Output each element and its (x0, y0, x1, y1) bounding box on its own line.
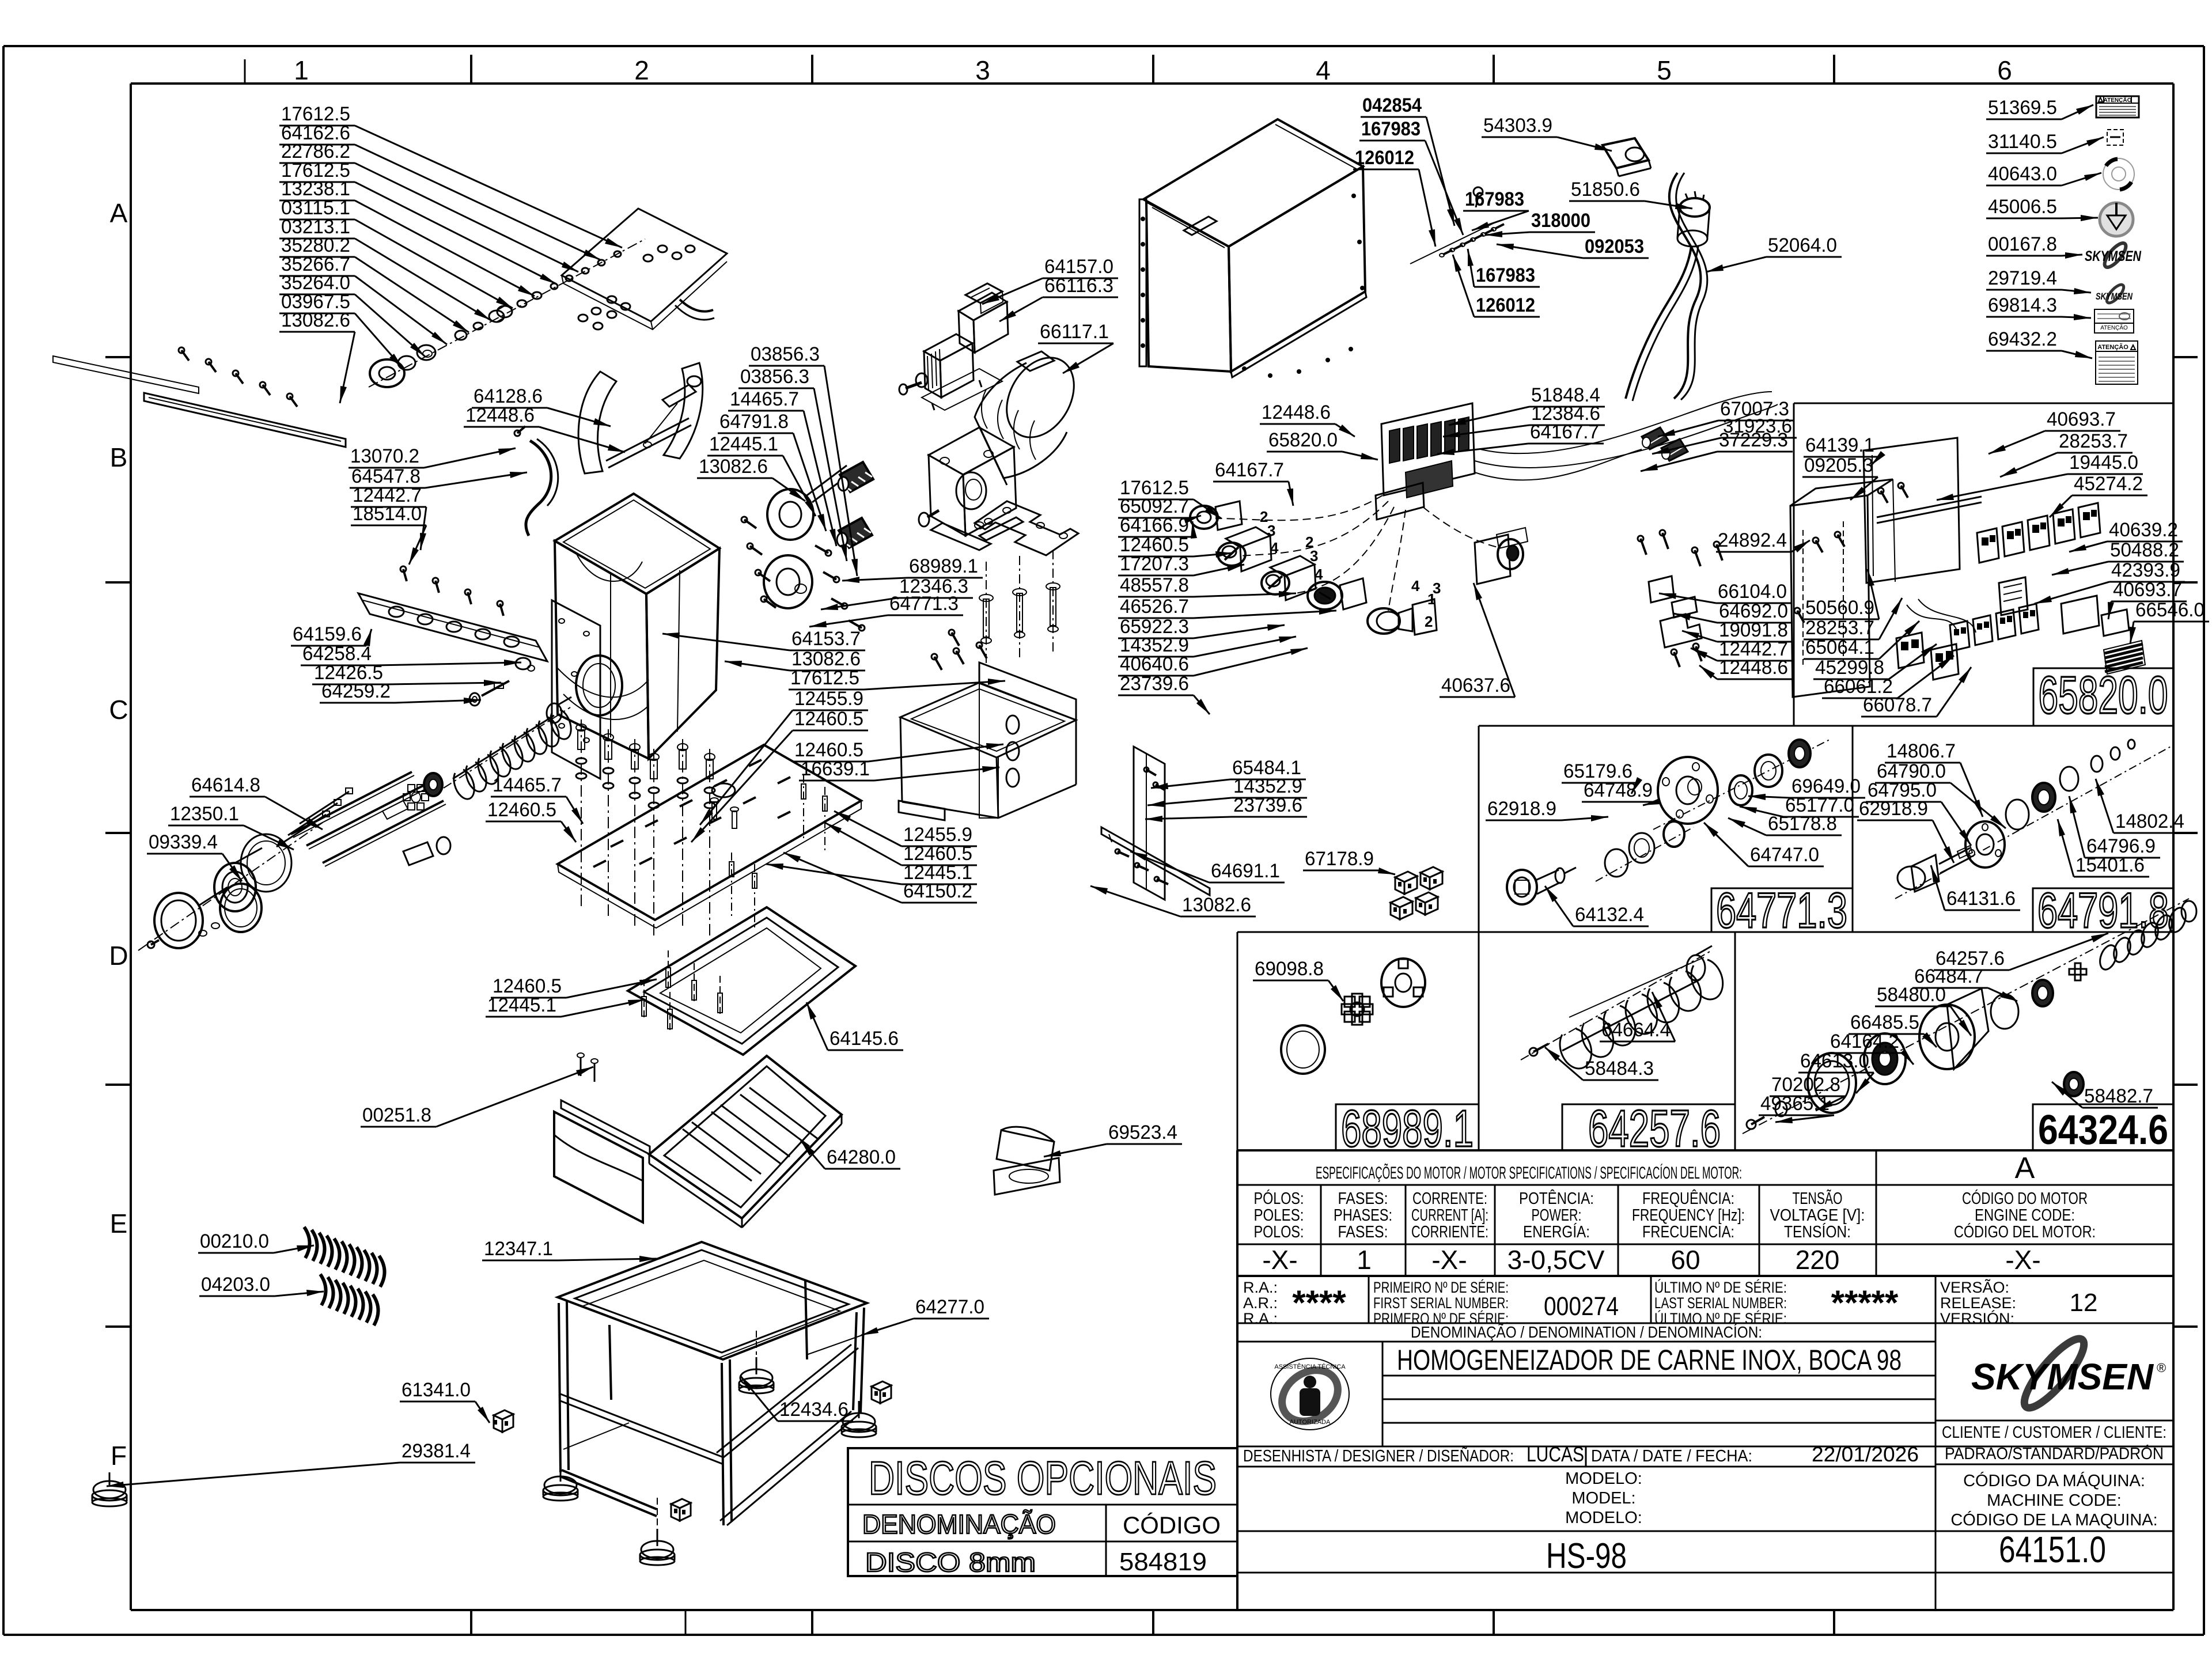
svg-text:18514.0: 18514.0 (353, 503, 422, 525)
svg-text:24892.4: 24892.4 (1718, 529, 1787, 551)
svg-text:14465.7: 14465.7 (730, 388, 799, 410)
svg-text:23739.6: 23739.6 (1120, 673, 1189, 695)
svg-text:®: ® (2157, 1361, 2166, 1375)
svg-text:03856.3: 03856.3 (751, 343, 820, 365)
svg-text:FASES:: FASES: (1338, 1190, 1388, 1208)
svg-text:CÓDIGO: CÓDIGO (1123, 1512, 1221, 1539)
svg-text:POWER:: POWER: (1532, 1206, 1582, 1225)
svg-text:126012: 126012 (1355, 147, 1414, 169)
svg-text:64167.7: 64167.7 (1530, 421, 1599, 443)
svg-text:61341.0: 61341.0 (402, 1379, 471, 1401)
svg-text:23739.6: 23739.6 (1233, 794, 1302, 816)
svg-text:POTÊNCIA:: POTÊNCIA: (1519, 1189, 1594, 1208)
svg-text:POLES:: POLES: (1254, 1206, 1304, 1225)
svg-text:4: 4 (1270, 539, 1279, 556)
svg-text:B: B (110, 442, 128, 472)
svg-text:DISCOS OPCIONAIS: DISCOS OPCIONAIS (869, 1452, 1217, 1505)
svg-text:SKYMSEN: SKYMSEN (2085, 248, 2142, 264)
svg-text:13082.6: 13082.6 (281, 309, 350, 331)
svg-text:FASES:: FASES: (1338, 1223, 1388, 1241)
svg-text:19445.0: 19445.0 (2069, 452, 2138, 474)
svg-text:VERSIÓN:: VERSIÓN: (1940, 1309, 2014, 1327)
svg-text:51369.5: 51369.5 (1988, 97, 2057, 119)
svg-text:68989.1: 68989.1 (909, 555, 978, 577)
svg-text:PHASES:: PHASES: (1334, 1206, 1392, 1225)
svg-text:65820.0: 65820.0 (1268, 429, 1338, 451)
svg-text:CÓDIGO DE LA MAQUINA:: CÓDIGO DE LA MAQUINA: (1950, 1510, 2157, 1529)
svg-text:1: 1 (1427, 590, 1435, 608)
svg-text:64159.6: 64159.6 (293, 623, 362, 645)
svg-text:51850.6: 51850.6 (1571, 179, 1640, 200)
svg-text:17612.5: 17612.5 (790, 667, 859, 689)
svg-text:ÚLTIMO Nº DE SÉRIE:: ÚLTIMO Nº DE SÉRIE: (1654, 1278, 1787, 1296)
svg-text:28253.7: 28253.7 (2059, 430, 2128, 452)
svg-text:****: **** (1292, 1283, 1346, 1322)
svg-text:220: 220 (1796, 1245, 1840, 1275)
svg-text:VOLTAGE [V]:: VOLTAGE [V]: (1770, 1206, 1865, 1225)
svg-text:64771.3: 64771.3 (1716, 883, 1847, 938)
svg-text:FRECUENCIA:: FRECUENCIA: (1642, 1223, 1734, 1241)
svg-text:00251.8: 00251.8 (362, 1104, 431, 1126)
svg-text:12448.6: 12448.6 (1719, 657, 1788, 679)
svg-text:HS-98: HS-98 (1546, 1536, 1627, 1576)
svg-text:58482.7: 58482.7 (2084, 1085, 2153, 1107)
svg-text:CURRENT [A]:: CURRENT [A]: (1411, 1206, 1488, 1225)
svg-text:126012: 126012 (1476, 294, 1535, 316)
svg-text:64139.1: 64139.1 (1805, 434, 1874, 456)
svg-text:ATENÇÃO: ATENÇÃO (2104, 96, 2132, 104)
svg-text:69098.8: 69098.8 (1255, 958, 1324, 980)
svg-text:167983: 167983 (1476, 264, 1535, 286)
svg-text:RELEASE:: RELEASE: (1940, 1294, 2016, 1312)
svg-text:29719.4: 29719.4 (1988, 267, 2057, 289)
svg-text:ATENÇÃO: ATENÇÃO (2097, 343, 2128, 351)
svg-text:52064.0: 52064.0 (1768, 234, 1837, 256)
svg-text:69814.3: 69814.3 (1988, 294, 2057, 316)
svg-text:POLOS:: POLOS: (1254, 1223, 1304, 1241)
svg-text:22/01/2026: 22/01/2026 (1812, 1442, 1919, 1466)
svg-text:-X-: -X- (1262, 1245, 1297, 1275)
svg-text:64664.4: 64664.4 (1601, 1019, 1671, 1041)
svg-text:1: 1 (1357, 1245, 1372, 1275)
svg-text:12445.1: 12445.1 (487, 994, 556, 1016)
svg-text:CÓDIGO DEL MOTOR:: CÓDIGO DEL MOTOR: (1954, 1222, 2096, 1241)
svg-text:-X-: -X- (1431, 1245, 1467, 1275)
svg-text:16639.1: 16639.1 (801, 758, 870, 780)
svg-text:R.A.:: R.A.: (1243, 1310, 1278, 1327)
svg-text:65064.1: 65064.1 (1805, 637, 1874, 658)
svg-text:12350.1: 12350.1 (170, 803, 239, 825)
svg-text:PÓLOS:: PÓLOS: (1254, 1189, 1304, 1208)
svg-text:64747.0: 64747.0 (1750, 844, 1819, 866)
svg-text:MODELO:: MODELO: (1565, 1509, 1642, 1527)
svg-text:37229.3: 37229.3 (1719, 429, 1788, 451)
svg-text:3: 3 (1310, 547, 1318, 565)
svg-text:584819: 584819 (1119, 1548, 1207, 1576)
svg-text:66116.3: 66116.3 (1044, 275, 1113, 297)
svg-text:64153.7: 64153.7 (791, 628, 861, 650)
svg-text:00210.0: 00210.0 (200, 1230, 269, 1252)
svg-text:64132.4: 64132.4 (1575, 904, 1644, 926)
svg-text:MODELO:: MODELO: (1565, 1469, 1642, 1488)
svg-text:09205.3: 09205.3 (1804, 454, 1873, 476)
svg-text:PRIMEIRO Nº DE SÉRIE:: PRIMEIRO Nº DE SÉRIE: (1373, 1279, 1509, 1296)
svg-text:64167.7: 64167.7 (1215, 459, 1284, 481)
svg-text:4: 4 (1316, 55, 1331, 85)
svg-text:SKYMSEN: SKYMSEN (1971, 1356, 2154, 1397)
svg-text:49365.1: 49365.1 (1760, 1093, 1830, 1115)
svg-text:31140.5: 31140.5 (1988, 131, 2057, 153)
svg-text:DENOMINAÇÃO: DENOMINAÇÃO (862, 1509, 1056, 1539)
svg-text:40639.2: 40639.2 (2109, 519, 2178, 541)
svg-text:64324.6: 64324.6 (2038, 1107, 2168, 1153)
svg-text:12460.5: 12460.5 (794, 708, 863, 730)
svg-text:PADRAO/STANDARD/PADRÓN: PADRAO/STANDARD/PADRÓN (1945, 1444, 2164, 1463)
svg-text:64748.9: 64748.9 (1584, 779, 1653, 801)
svg-text:64691.1: 64691.1 (1211, 860, 1280, 882)
svg-text:64259.2: 64259.2 (321, 680, 391, 702)
svg-text:14806.7: 14806.7 (1887, 740, 1956, 762)
svg-text:MODEL:: MODEL: (1571, 1489, 1635, 1508)
svg-text:42393.9: 42393.9 (2111, 559, 2180, 581)
svg-text:00167.8: 00167.8 (1988, 233, 2057, 255)
svg-text:CLIENTE / CUSTOMER / CLIENTE:: CLIENTE / CUSTOMER / CLIENTE: (1942, 1423, 2166, 1442)
svg-text:VERSÃO:: VERSÃO: (1940, 1278, 2009, 1296)
svg-text:CÓDIGO DA MÁQUINA:: CÓDIGO DA MÁQUINA: (1963, 1471, 2145, 1490)
svg-text:ENERGÍA:: ENERGÍA: (1523, 1222, 1590, 1241)
svg-text:E: E (110, 1209, 128, 1238)
svg-text:D: D (109, 941, 128, 971)
svg-text:LUCAS: LUCAS (1527, 1442, 1584, 1466)
svg-text:64166.9: 64166.9 (1120, 514, 1189, 536)
svg-text:-X-: -X- (2005, 1245, 2040, 1275)
svg-text:042854: 042854 (1362, 94, 1422, 116)
svg-text:28253.7: 28253.7 (1805, 617, 1874, 639)
svg-text:ASSISTÊNCIA TÉCNICA: ASSISTÊNCIA TÉCNICA (1274, 1363, 1346, 1370)
svg-text:167983: 167983 (1465, 188, 1524, 210)
svg-text:64131.6: 64131.6 (1946, 888, 2016, 910)
svg-text:4: 4 (1411, 577, 1420, 594)
svg-text:ESPECIFICAÇÕES DO MOTOR / MOTO: ESPECIFICAÇÕES DO MOTOR / MOTOR SPECIFIC… (1316, 1163, 1742, 1183)
svg-text:6: 6 (1997, 55, 2012, 85)
svg-text:09339.4: 09339.4 (149, 831, 218, 853)
svg-text:64150.2: 64150.2 (903, 880, 972, 902)
svg-text:13070.2: 13070.2 (350, 445, 419, 467)
svg-text:C: C (109, 695, 128, 725)
svg-text:64791.8: 64791.8 (719, 411, 789, 433)
svg-text:12347.1: 12347.1 (484, 1238, 553, 1260)
svg-text:DISCO 8mm: DISCO 8mm (865, 1547, 1036, 1577)
svg-text:50560.9: 50560.9 (1805, 597, 1874, 619)
svg-text:SKYMSEN: SKYMSEN (2096, 291, 2133, 302)
svg-text:65820.0: 65820.0 (2039, 666, 2168, 725)
svg-text:12: 12 (2070, 1289, 2098, 1317)
svg-text:2: 2 (1425, 613, 1433, 630)
svg-text:15401.6: 15401.6 (2075, 854, 2145, 876)
svg-text:46526.7: 46526.7 (1120, 596, 1189, 618)
svg-text:40643.0: 40643.0 (1988, 163, 2057, 185)
svg-text:13082.6: 13082.6 (699, 456, 768, 478)
svg-text:66117.1: 66117.1 (1040, 321, 1109, 343)
svg-text:TENSÍON:: TENSÍON: (1784, 1222, 1851, 1241)
svg-text:64151.0: 64151.0 (1999, 1529, 2106, 1570)
svg-text:12445.1: 12445.1 (709, 433, 778, 455)
svg-text:62918.9: 62918.9 (1487, 798, 1556, 820)
svg-text:DESENHISTA / DESIGNER / DISEÑA: DESENHISTA / DESIGNER / DISEÑADOR: (1243, 1446, 1514, 1465)
svg-text:AUTORIZADA: AUTORIZADA (1290, 1419, 1331, 1426)
svg-text:A: A (2015, 1152, 2035, 1185)
svg-text:12448.6: 12448.6 (1262, 402, 1331, 423)
svg-text:5: 5 (1657, 55, 1672, 85)
svg-text:167983: 167983 (1361, 118, 1421, 140)
svg-text:FIRST SERIAL NUMBER:: FIRST SERIAL NUMBER: (1373, 1294, 1509, 1312)
svg-text:*****: ***** (1831, 1283, 1899, 1322)
svg-text:318000: 318000 (1531, 210, 1590, 232)
svg-text:66078.7: 66078.7 (1863, 694, 1932, 716)
svg-text:12448.6: 12448.6 (465, 404, 535, 426)
svg-text:3-0,5CV: 3-0,5CV (1508, 1245, 1605, 1275)
svg-text:DENOMINAÇÃO / DENOMINATION / D: DENOMINAÇÃO / DENOMINATION / DENOMINACÍO… (1411, 1323, 1762, 1341)
svg-text:69432.2: 69432.2 (1988, 328, 2057, 350)
svg-text:3: 3 (1267, 522, 1275, 539)
svg-text:66104.0: 66104.0 (1718, 581, 1787, 603)
svg-text:CORRENTE:: CORRENTE: (1412, 1190, 1487, 1208)
svg-text:58480.0: 58480.0 (1877, 984, 1946, 1006)
svg-text:58484.3: 58484.3 (1585, 1058, 1654, 1080)
svg-text:14465.7: 14465.7 (493, 774, 562, 796)
svg-text:60: 60 (1671, 1245, 1700, 1275)
svg-text:3: 3 (975, 55, 990, 85)
svg-text:TENSÃO: TENSÃO (1793, 1188, 1843, 1208)
svg-text:66546.0: 66546.0 (2135, 599, 2205, 621)
svg-text:2: 2 (634, 55, 649, 85)
svg-text:FREQUENCY [Hz]:: FREQUENCY [Hz]: (1632, 1206, 1745, 1225)
svg-text:64277.0: 64277.0 (915, 1296, 984, 1318)
svg-text:LAST SERIAL NUMBER:: LAST SERIAL NUMBER: (1654, 1294, 1787, 1312)
svg-text:092053: 092053 (1585, 236, 1644, 257)
svg-text:40637.6: 40637.6 (1441, 675, 1510, 696)
svg-text:29381.4: 29381.4 (402, 1440, 471, 1462)
svg-text:45006.5: 45006.5 (1988, 196, 2057, 218)
svg-text:MACHINE CODE:: MACHINE CODE: (1987, 1491, 2122, 1510)
svg-text:54303.9: 54303.9 (1483, 115, 1552, 137)
svg-text:F: F (111, 1441, 127, 1471)
svg-text:CÓDIGO DO MOTOR: CÓDIGO DO MOTOR (1962, 1189, 2088, 1208)
svg-text:64145.6: 64145.6 (829, 1028, 899, 1050)
svg-text:48557.8: 48557.8 (1120, 574, 1189, 596)
svg-text:A.R.:: A.R.: (1243, 1294, 1278, 1312)
svg-text:64791.8: 64791.8 (2037, 883, 2169, 938)
svg-text:40693.7: 40693.7 (2047, 408, 2116, 430)
svg-text:64614.8: 64614.8 (191, 774, 260, 796)
svg-text:67178.9: 67178.9 (1305, 848, 1374, 870)
svg-text:ATENÇÃO: ATENÇÃO (2100, 324, 2128, 331)
svg-text:1: 1 (294, 55, 309, 85)
svg-text:FREQUÊNCIA:: FREQUÊNCIA: (1642, 1189, 1734, 1208)
svg-text:69523.4: 69523.4 (1108, 1122, 1177, 1143)
svg-text:4: 4 (1315, 566, 1323, 583)
svg-text:40640.6: 40640.6 (1120, 653, 1189, 675)
svg-text:45274.2: 45274.2 (2074, 473, 2143, 495)
svg-text:R.A.:: R.A.: (1243, 1279, 1278, 1296)
svg-text:64771.3: 64771.3 (889, 593, 959, 615)
svg-text:64613.0: 64613.0 (1800, 1050, 1869, 1072)
svg-text:HOMOGENEIZADOR DE CARNE INOX,: HOMOGENEIZADOR DE CARNE INOX, BOCA 98 (1397, 1344, 1902, 1376)
svg-text:12434.6: 12434.6 (779, 1399, 849, 1421)
svg-text:000274: 000274 (1544, 1291, 1619, 1321)
svg-text:04203.0: 04203.0 (201, 1274, 270, 1296)
svg-text:17207.3: 17207.3 (1120, 553, 1189, 575)
svg-text:12460.5: 12460.5 (487, 799, 556, 821)
svg-text:ENGINE CODE:: ENGINE CODE: (1975, 1206, 2075, 1225)
svg-text:A: A (110, 198, 128, 228)
svg-text:62918.9: 62918.9 (1859, 798, 1928, 820)
svg-text:40693.7: 40693.7 (2113, 579, 2182, 601)
svg-text:CORRIENTE:: CORRIENTE: (1411, 1223, 1488, 1241)
svg-text:14802.4: 14802.4 (2115, 810, 2184, 832)
svg-text:03856.3: 03856.3 (740, 366, 809, 388)
svg-text:64164.2: 64164.2 (1830, 1031, 1899, 1052)
svg-text:DATA / DATE / FECHA:: DATA / DATE / FECHA: (1591, 1447, 1752, 1465)
svg-text:12455.9: 12455.9 (794, 688, 863, 710)
svg-text:64280.0: 64280.0 (827, 1146, 896, 1168)
svg-text:65178.8: 65178.8 (1768, 813, 1837, 835)
svg-text:50488.2: 50488.2 (2110, 539, 2179, 561)
svg-text:13082.6: 13082.6 (1182, 894, 1251, 916)
